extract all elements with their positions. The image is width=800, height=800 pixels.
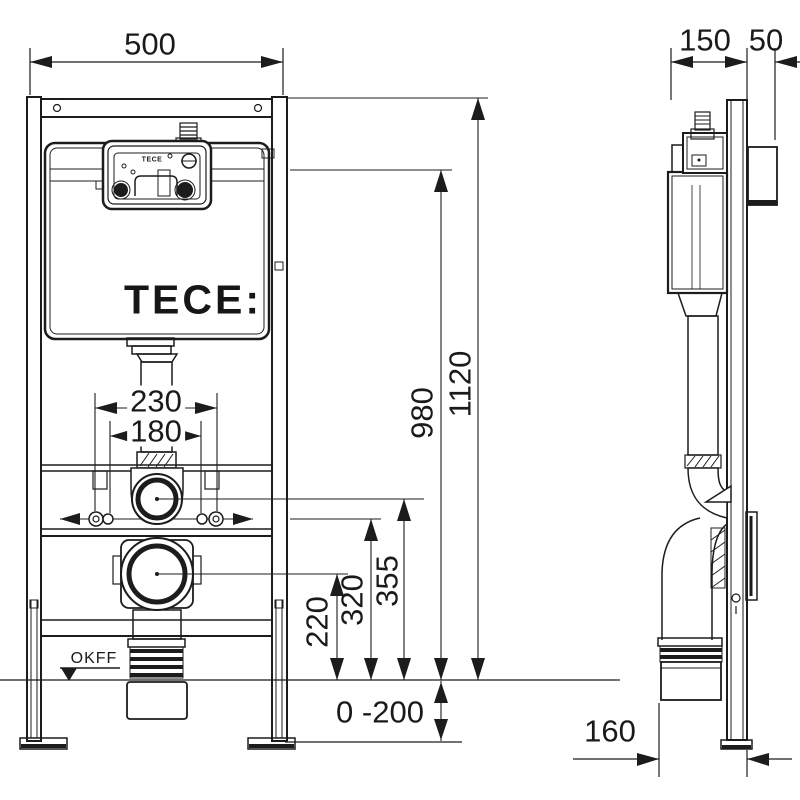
floor-level [0,668,620,742]
technical-drawing: 500 150 50 TECE: TECE 230 180 220 320 35… [0,0,800,800]
dim-label-total-height: 1120 [445,351,476,418]
drain-pipe [127,610,187,719]
dim-label-inner-fixing: 180 [127,416,185,447]
dim-label-flush-height: 355 [372,555,403,607]
dim-label-rod-height: 320 [337,574,368,626]
flush-bend [131,468,424,524]
side-drain-elbow [658,518,727,700]
dim-label-adjust-range: 0 -200 [336,697,424,728]
dim-depth-150-50 [671,48,800,140]
floor-level-label: OKFF [71,651,118,667]
dim-label-outlet-offset: 160 [584,716,636,747]
dim-label-width: 500 [124,29,176,60]
side-cistern [668,112,727,316]
dim-label-rail-offset: 50 [749,25,783,56]
flush-unit-box [103,141,211,209]
dim-label-bracket-height: 980 [407,387,438,439]
side-flush-pipe [685,316,731,518]
brand-logo: TECE: [124,280,262,321]
pan-fixing-rods [60,512,381,526]
level-marker-icon [61,668,77,681]
top-rail [41,99,272,117]
dim-label-outer-fixing: 230 [127,386,185,417]
flush-unit-microtext: TECE [142,157,163,164]
dim-label-drain-height: 220 [302,596,333,648]
dim-adjust-0-200 [434,681,448,741]
frame-feet [20,738,295,749]
frame-linework [0,0,800,800]
wall-bracket [746,147,777,600]
side-view [573,48,800,777]
dim-label-depth: 150 [679,25,731,56]
